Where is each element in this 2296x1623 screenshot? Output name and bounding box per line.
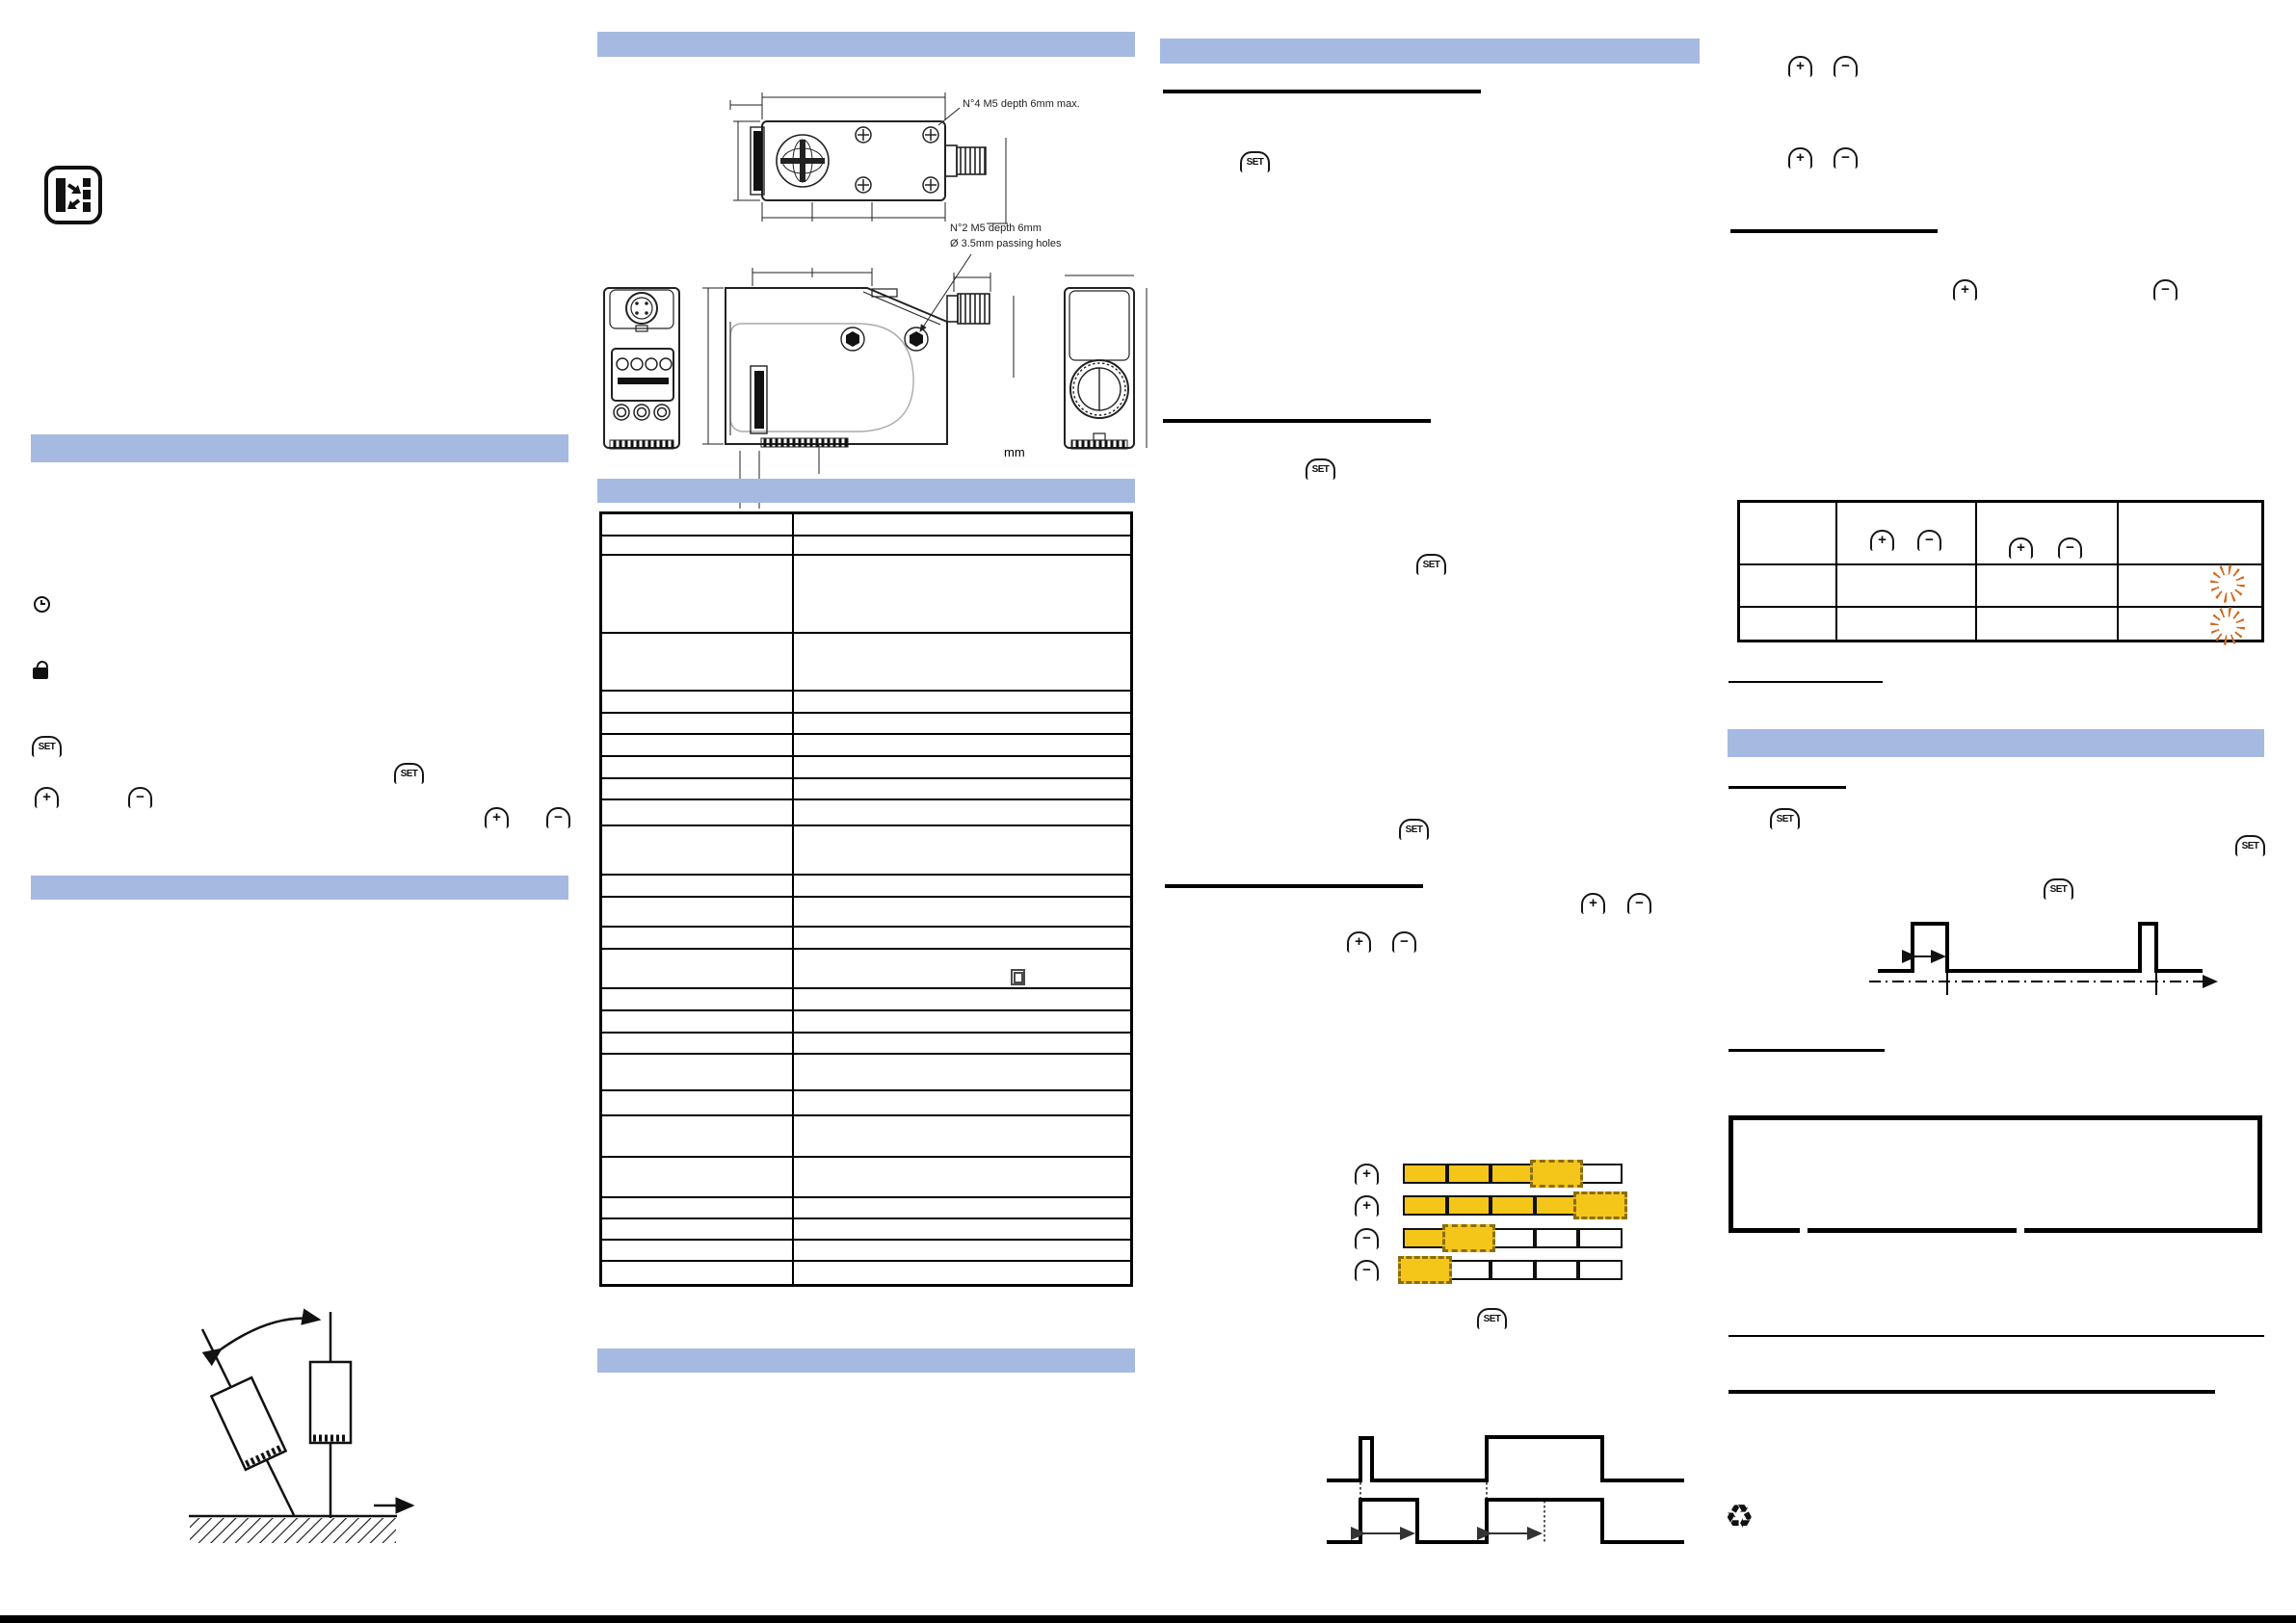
blinking-led-icon (2210, 564, 2245, 603)
led-segment-off (1535, 1228, 1579, 1248)
led-bar (1403, 1260, 1623, 1280)
spec-table-row (602, 537, 1130, 556)
spec-table-row (602, 1055, 1130, 1091)
section-bar-6 (1160, 39, 1700, 64)
minus-key-icon: − (2153, 279, 2177, 301)
minus-key-icon: − (546, 807, 570, 828)
spec-table (599, 511, 1133, 1287)
led-segment-blink (1442, 1224, 1496, 1252)
minus-key-icon: − (1834, 147, 1858, 169)
recycle-icon: ♻ (1725, 1501, 1754, 1533)
notice-box-gap (1800, 1228, 1808, 1233)
set-key-icon: SET (1306, 458, 1335, 480)
spec-table-row (602, 1219, 1130, 1241)
notice-box (1729, 1115, 2262, 1233)
spec-table-row (602, 735, 1130, 757)
heading-rule (1165, 884, 1423, 888)
led-segment-on (1403, 1164, 1447, 1184)
set-key-icon: SET (394, 763, 424, 784)
footer-rule-thick (1729, 1390, 2215, 1394)
blinking-led-icon (2210, 607, 2245, 645)
minus-key-icon: − (1917, 530, 1941, 551)
plus-key-icon: + (2009, 537, 2033, 559)
spec-table-row (602, 1262, 1130, 1284)
plus-key-icon: + (1355, 1164, 1379, 1185)
set-key-icon: SET (2044, 878, 2073, 900)
tilt-angle-diagram (178, 1300, 438, 1556)
units-label: mm (1004, 445, 1025, 459)
spec-table-row (602, 714, 1130, 735)
spec-table-row (602, 514, 1130, 537)
led-segment-off (1578, 1228, 1623, 1248)
plus-key-icon: + (35, 787, 59, 808)
set-key-icon: SET (1770, 808, 1800, 829)
set-key-icon: SET (1416, 554, 1446, 575)
led-bar (1403, 1195, 1623, 1216)
section-bar-7 (1728, 729, 2264, 757)
footer-rule-thin (1729, 1335, 2264, 1337)
led-segment-on (1491, 1164, 1535, 1184)
led-segment-off (1535, 1260, 1579, 1280)
section-bar-1 (31, 434, 568, 462)
led-segment-blink (1530, 1160, 1584, 1188)
led-segment-on (1447, 1195, 1491, 1216)
spec-table-row (602, 989, 1130, 1011)
plus-key-icon: + (1581, 893, 1605, 914)
retroreflective-beam-icon (43, 164, 103, 227)
spec-table-row (602, 692, 1130, 714)
spec-table-row (602, 950, 1130, 989)
output-timing-diagram (1323, 1368, 1737, 1589)
led-segment-off (1447, 1260, 1491, 1280)
heading-rule (1730, 229, 1938, 233)
sensor-dimensional-drawing: N°4 M5 depth 6mm max. N (597, 72, 1137, 472)
heading-rule (1163, 419, 1431, 423)
plus-key-icon: + (1788, 56, 1812, 77)
dim-label-side-screws: N°2 M5 depth 6mm (950, 223, 1042, 234)
spec-table-row (602, 556, 1130, 634)
footnote-rule (1729, 681, 1883, 683)
subheading-rule (1729, 1049, 1885, 1052)
led-segment-off (1491, 1228, 1535, 1248)
dim-label-top-screws: N°4 M5 depth 6mm max. (963, 98, 1080, 110)
spec-table-row (602, 634, 1130, 692)
spec-table-row (602, 1091, 1130, 1116)
minus-key-icon: − (1834, 56, 1858, 77)
set-key-icon: SET (1240, 151, 1270, 172)
plus-key-icon: + (1953, 279, 1977, 301)
led-segment-off (1491, 1260, 1535, 1280)
minus-key-icon: − (1627, 893, 1651, 914)
spec-table-divider (792, 514, 794, 1284)
led-segment-off (1578, 1164, 1623, 1184)
plus-key-icon: + (1355, 1195, 1379, 1217)
led-bar (1403, 1164, 1623, 1184)
minus-key-icon: − (1355, 1228, 1379, 1249)
feedback-table: + − + − (1737, 500, 2264, 642)
spec-table-row (602, 1034, 1130, 1055)
response-time-icon (34, 596, 50, 613)
minus-key-icon: − (1355, 1260, 1379, 1281)
spec-table-row (602, 876, 1130, 898)
set-key-icon: SET (32, 736, 62, 757)
led-segment-on (1403, 1228, 1447, 1248)
spec-table-row (602, 1011, 1130, 1034)
plus-key-icon: + (1347, 931, 1371, 953)
dim-label-passing-holes: Ø 3.5mm passing holes (950, 238, 1062, 249)
led-segment-on (1403, 1195, 1447, 1216)
heading-rule (1163, 90, 1481, 93)
spec-table-row (602, 928, 1130, 950)
spec-table-row (602, 779, 1130, 800)
notice-box-gap (2017, 1228, 2024, 1233)
spec-table-row (602, 898, 1130, 928)
set-key-icon: SET (2235, 835, 2265, 856)
subheading-rule (1729, 786, 1846, 789)
led-segment-blink (1573, 1191, 1627, 1219)
spec-table-row (602, 1241, 1130, 1262)
pulse-timing-diagram (1860, 915, 2240, 1007)
set-key-icon: SET (1477, 1308, 1507, 1329)
plus-key-icon: + (1788, 147, 1812, 169)
plus-key-icon: + (1870, 530, 1894, 551)
section-bar-5 (597, 1348, 1135, 1373)
led-segment-on (1447, 1164, 1491, 1184)
section-bar-4 (597, 479, 1135, 503)
minus-key-icon: − (2058, 537, 2082, 559)
set-key-icon: SET (1399, 819, 1429, 840)
spec-table-row (602, 757, 1130, 779)
spec-table-row (602, 1198, 1130, 1219)
keylock-icon (33, 668, 48, 679)
minus-key-icon: − (128, 787, 152, 808)
spec-table-row (602, 826, 1130, 876)
page-bottom-edge (0, 1615, 2296, 1623)
spec-table-row (602, 800, 1130, 826)
plus-key-icon: + (485, 807, 509, 828)
led-segment-on (1491, 1195, 1535, 1216)
double-insulation-icon (1011, 969, 1025, 985)
led-segment-on (1535, 1195, 1579, 1216)
led-segment-blink (1398, 1256, 1452, 1284)
datasheet-page: { "doc": { "colors": { "section_bar": "#… (0, 0, 2296, 1623)
spec-table-row (602, 1158, 1130, 1198)
section-bar-3 (597, 32, 1135, 57)
led-segment-off (1578, 1260, 1623, 1280)
minus-key-icon: − (1392, 931, 1416, 953)
led-bar (1403, 1228, 1623, 1248)
spec-table-row (602, 1116, 1130, 1158)
section-bar-2 (31, 876, 568, 900)
